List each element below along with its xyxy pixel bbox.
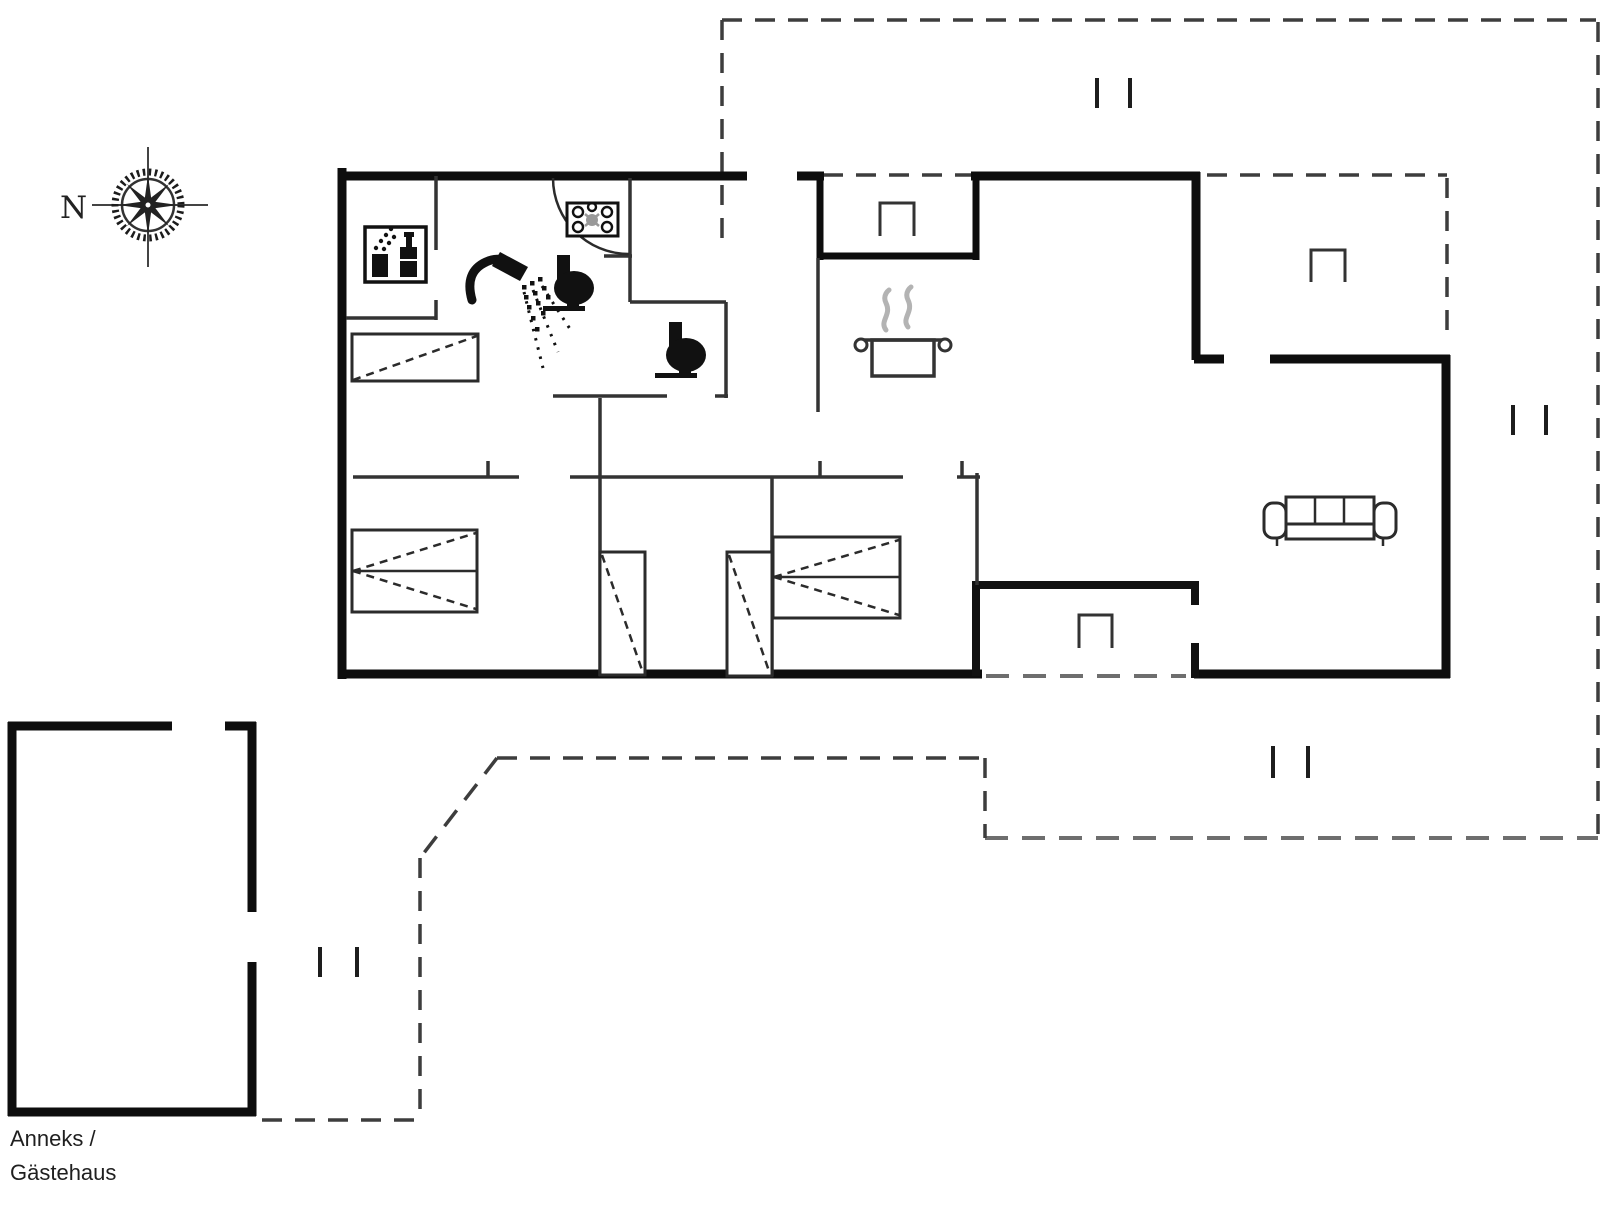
- sofa-icon: [1264, 497, 1396, 546]
- cooking-pot-icon: [855, 287, 951, 376]
- niche-marker: [1079, 615, 1112, 648]
- annex-label-line1: Anneks /: [10, 1126, 96, 1151]
- hob-icon: [567, 203, 618, 236]
- compass-center: [146, 203, 151, 208]
- annex-label-line2: Gästehaus: [10, 1160, 116, 1185]
- niche-marker: [1311, 250, 1345, 282]
- double-bed-symbol: [773, 537, 900, 618]
- toilet-icon: [655, 322, 706, 378]
- single-bed-symbol: [600, 552, 645, 675]
- toilet-icon: [543, 255, 594, 311]
- pot-body: [872, 340, 934, 376]
- annex-building: Anneks / Gästehaus: [8, 722, 256, 1185]
- detergent-box: [372, 254, 388, 277]
- sofa-arm: [1374, 503, 1396, 538]
- steam: [884, 290, 889, 330]
- wardrobe-symbol: [352, 334, 478, 381]
- single-bed-symbol: [727, 552, 772, 676]
- steam: [906, 287, 911, 327]
- sofa-arm: [1264, 503, 1286, 538]
- double-bed-symbol: [352, 530, 477, 612]
- shower-spray: [522, 277, 551, 332]
- floorplan-canvas: N Anneks / Gästehaus: [0, 0, 1606, 1205]
- pot-handle: [939, 339, 951, 351]
- sofa-seat: [1286, 497, 1374, 524]
- compass-rose-icon: N: [60, 147, 208, 267]
- pot-handle: [855, 339, 867, 351]
- niche-marker: [880, 203, 914, 236]
- furniture: [352, 334, 1396, 676]
- floor-plan: N Anneks / Gästehaus: [0, 0, 1606, 1205]
- terrace-path-diagonal: [420, 758, 497, 858]
- sofa-back: [1286, 524, 1374, 539]
- compass-north-label: N: [60, 190, 87, 226]
- washing-machine-icon: [365, 227, 426, 282]
